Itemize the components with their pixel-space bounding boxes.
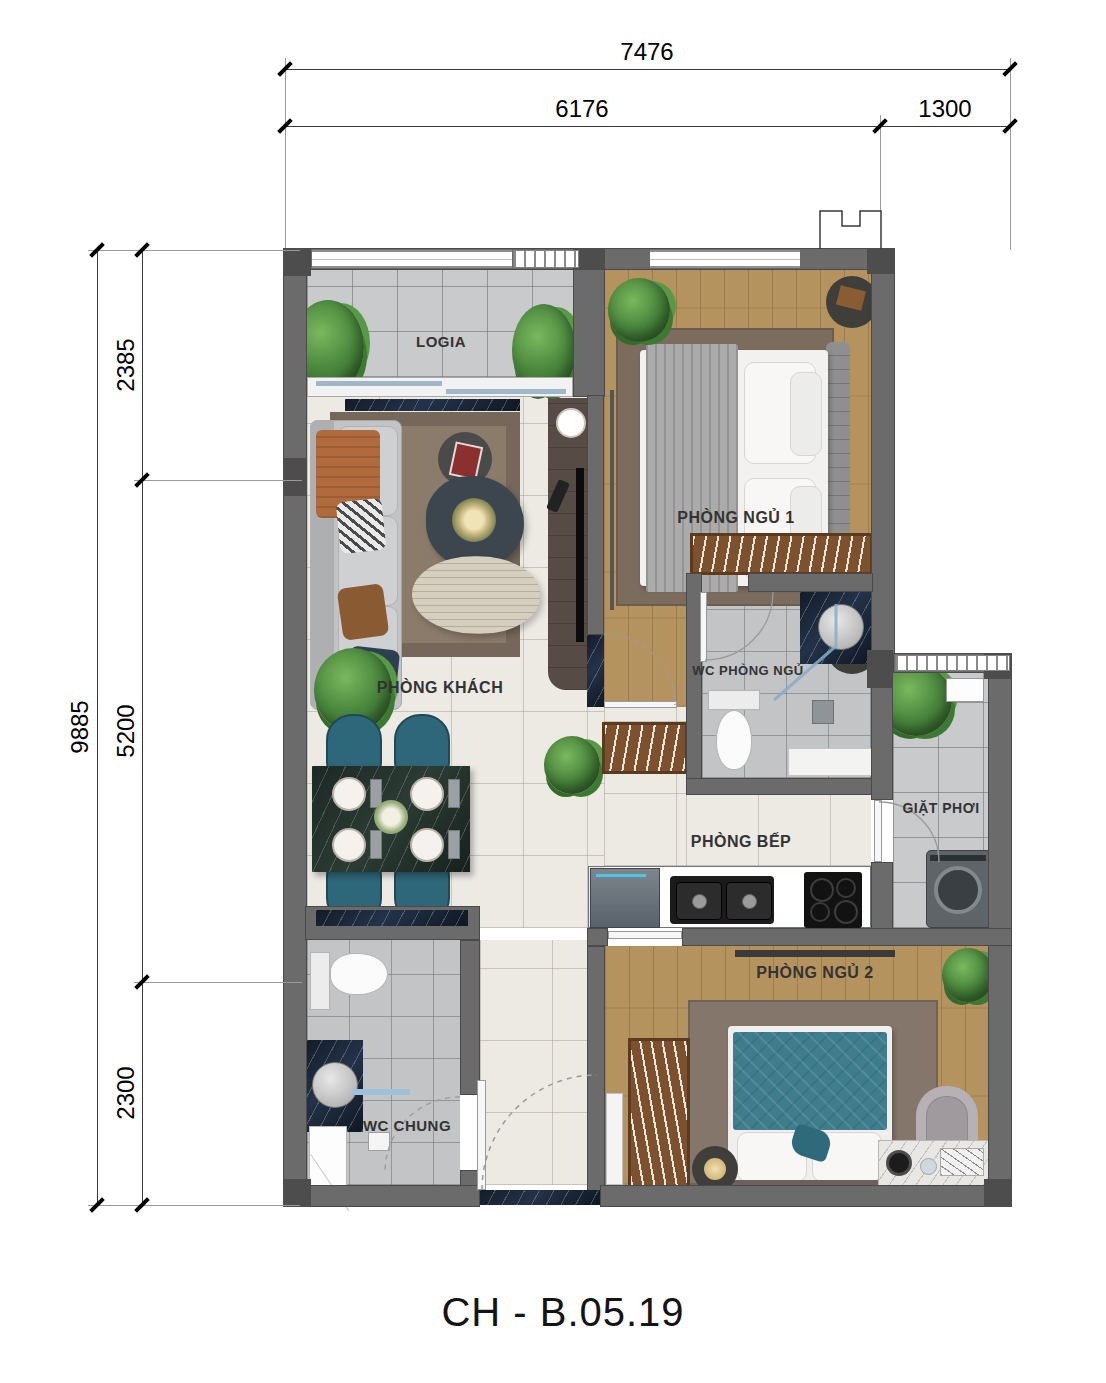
place-setting xyxy=(332,777,366,811)
washing-machine-door xyxy=(934,866,982,914)
flower-centerpiece xyxy=(452,498,496,542)
wall-logia-right xyxy=(573,248,605,397)
wall-wcc-right-upper xyxy=(460,940,480,1095)
bedroom2-door-leaf xyxy=(608,931,682,939)
tall-white-cabinet xyxy=(606,1093,623,1185)
wall-bottom-right xyxy=(600,1185,1012,1207)
plant xyxy=(942,948,994,1002)
dim-line-left-segments xyxy=(142,250,143,1205)
wcc-top-marble-band xyxy=(316,910,468,926)
entry-threshold xyxy=(480,1190,600,1205)
entry-hall-floor xyxy=(480,940,587,1185)
apartment-unit-title: CH - B.05.19 xyxy=(441,1290,684,1335)
extension-line xyxy=(88,1205,300,1206)
dishwasher xyxy=(590,868,660,928)
vanity-tray xyxy=(940,1148,984,1176)
bed2-tv-bar xyxy=(735,950,895,957)
extension-line xyxy=(88,250,300,251)
burner xyxy=(810,902,830,922)
door-sill-marble xyxy=(345,399,520,411)
wall-bottom-left xyxy=(283,1185,480,1207)
wall-corner xyxy=(867,248,895,274)
label-kitchen: PHÒNG BẾP xyxy=(691,833,792,851)
wall-corner xyxy=(867,650,893,688)
table-centerpiece xyxy=(374,800,408,834)
wall-hall-left xyxy=(587,946,605,1192)
logia-sliding-door-frame xyxy=(307,377,573,397)
hatched-window-band xyxy=(513,250,579,268)
wc1-toilet-tank xyxy=(708,690,760,710)
sink-faucet xyxy=(692,894,707,909)
wcc-round-sink xyxy=(312,1062,358,1108)
wc1-door-leaf xyxy=(700,592,707,662)
bed1-pillow-small xyxy=(790,372,822,456)
wall-left xyxy=(283,248,307,1207)
checkered-pillow xyxy=(335,498,386,555)
sliding-door-panel xyxy=(316,381,442,386)
wall-corner xyxy=(283,458,307,496)
burner xyxy=(834,900,858,924)
entry-door-leaf xyxy=(477,1080,486,1190)
wall-right-upper xyxy=(871,248,895,672)
dim-value-top-total: 7476 xyxy=(620,38,673,66)
wall-wc1-bottom xyxy=(686,778,873,795)
coffee-cup xyxy=(556,408,586,438)
dim-line-left-total xyxy=(97,250,98,1205)
vanity-bowl xyxy=(886,1150,912,1176)
paper-holder xyxy=(368,1132,390,1151)
label-logia: LOGIA xyxy=(416,333,466,350)
label-laundry: GIẶT PHƠI xyxy=(902,800,979,816)
laundry-louver-window xyxy=(895,655,1010,671)
dim-value-top-seg1: 6176 xyxy=(555,95,608,123)
bedroom1-window xyxy=(650,250,800,268)
wall-bed1-south xyxy=(748,573,873,592)
extension-line xyxy=(285,58,286,248)
curtain-rail xyxy=(610,390,614,610)
label-bedroom1: PHÒNG NGỦ 1 xyxy=(677,509,795,527)
sliding-door-panel xyxy=(446,389,566,394)
bed2-blanket xyxy=(733,1032,887,1130)
dim-value-left-seg3: 2300 xyxy=(112,1066,140,1119)
wc1-counter xyxy=(788,748,872,776)
dim-value-left-total: 9885 xyxy=(66,700,94,753)
dim-value-left-seg2: 5200 xyxy=(112,704,140,757)
sink-faucet xyxy=(742,894,757,909)
burner xyxy=(810,878,834,902)
washing-machine-panel xyxy=(930,855,986,861)
place-setting xyxy=(410,777,444,811)
vanity-dish xyxy=(920,1158,937,1175)
dishwasher-accent xyxy=(596,874,646,877)
wcc-shower-tray xyxy=(309,1126,347,1186)
brown-pillow xyxy=(337,583,390,641)
utensil-roll xyxy=(370,830,382,859)
shower-fixture xyxy=(812,700,834,724)
wall-laundry-left-upper xyxy=(871,672,893,800)
wc1-toilet-bowl xyxy=(716,710,752,770)
dim-line-top-total xyxy=(285,69,1010,70)
wc1-round-sink xyxy=(818,604,864,650)
utensil-roll xyxy=(448,830,460,859)
place-setting xyxy=(332,828,366,862)
plant xyxy=(608,278,670,342)
burner xyxy=(836,878,856,898)
corridor-wardrobe xyxy=(602,722,688,774)
wcc-toilet-tank xyxy=(310,952,330,1010)
wall-partition-living-bed1 xyxy=(587,395,604,635)
wall-bed2-top-west xyxy=(587,928,608,946)
wall-vent-box xyxy=(946,678,984,702)
plant xyxy=(544,736,600,794)
extension-line xyxy=(1010,58,1011,250)
wall-corner xyxy=(283,248,311,276)
bedroom2-wardrobe xyxy=(628,1038,690,1188)
dim-line-top-segments xyxy=(285,126,1010,127)
kitchen-floor xyxy=(686,795,871,866)
label-wc-common: WC CHUNG xyxy=(363,1117,451,1134)
wcc-toilet-bowl xyxy=(330,953,388,995)
bedroom1-door-leaf xyxy=(604,701,677,708)
extension-line xyxy=(880,115,881,211)
coffee-table-light xyxy=(412,556,540,634)
label-living-room: PHÒNG KHÁCH xyxy=(377,679,503,697)
floor-plan-canvas: LOGIA PHÒNG KHÁCH PHÒNG NGỦ 1 WC PHÒNG N… xyxy=(0,0,1106,1383)
bedroom1-wardrobe xyxy=(690,533,873,575)
utensil-roll xyxy=(448,779,460,808)
wall-corner xyxy=(984,1179,1012,1207)
wall-partition-marble xyxy=(587,635,604,707)
label-wc-bedroom: WC PHÒNG NGỦ xyxy=(692,663,803,678)
wall-corner xyxy=(283,1179,311,1207)
extension-line xyxy=(134,982,302,983)
place-setting xyxy=(410,828,444,862)
ac-ledge-notch-outline xyxy=(820,211,881,249)
wall-laundry-left-lower xyxy=(871,862,893,930)
dim-value-top-seg2: 1300 xyxy=(918,95,971,123)
tv-screen xyxy=(576,468,584,642)
wcc-glass-partition xyxy=(352,1089,410,1095)
label-bedroom2: PHÒNG NGỦ 2 xyxy=(756,964,874,982)
laundry-door-leaf xyxy=(874,800,882,862)
nightstand-lamp xyxy=(704,1158,726,1180)
logia-window xyxy=(312,250,512,268)
dim-value-left-seg1: 2385 xyxy=(112,338,140,391)
extension-line xyxy=(134,480,302,481)
wall-bed2-top xyxy=(682,928,1012,946)
